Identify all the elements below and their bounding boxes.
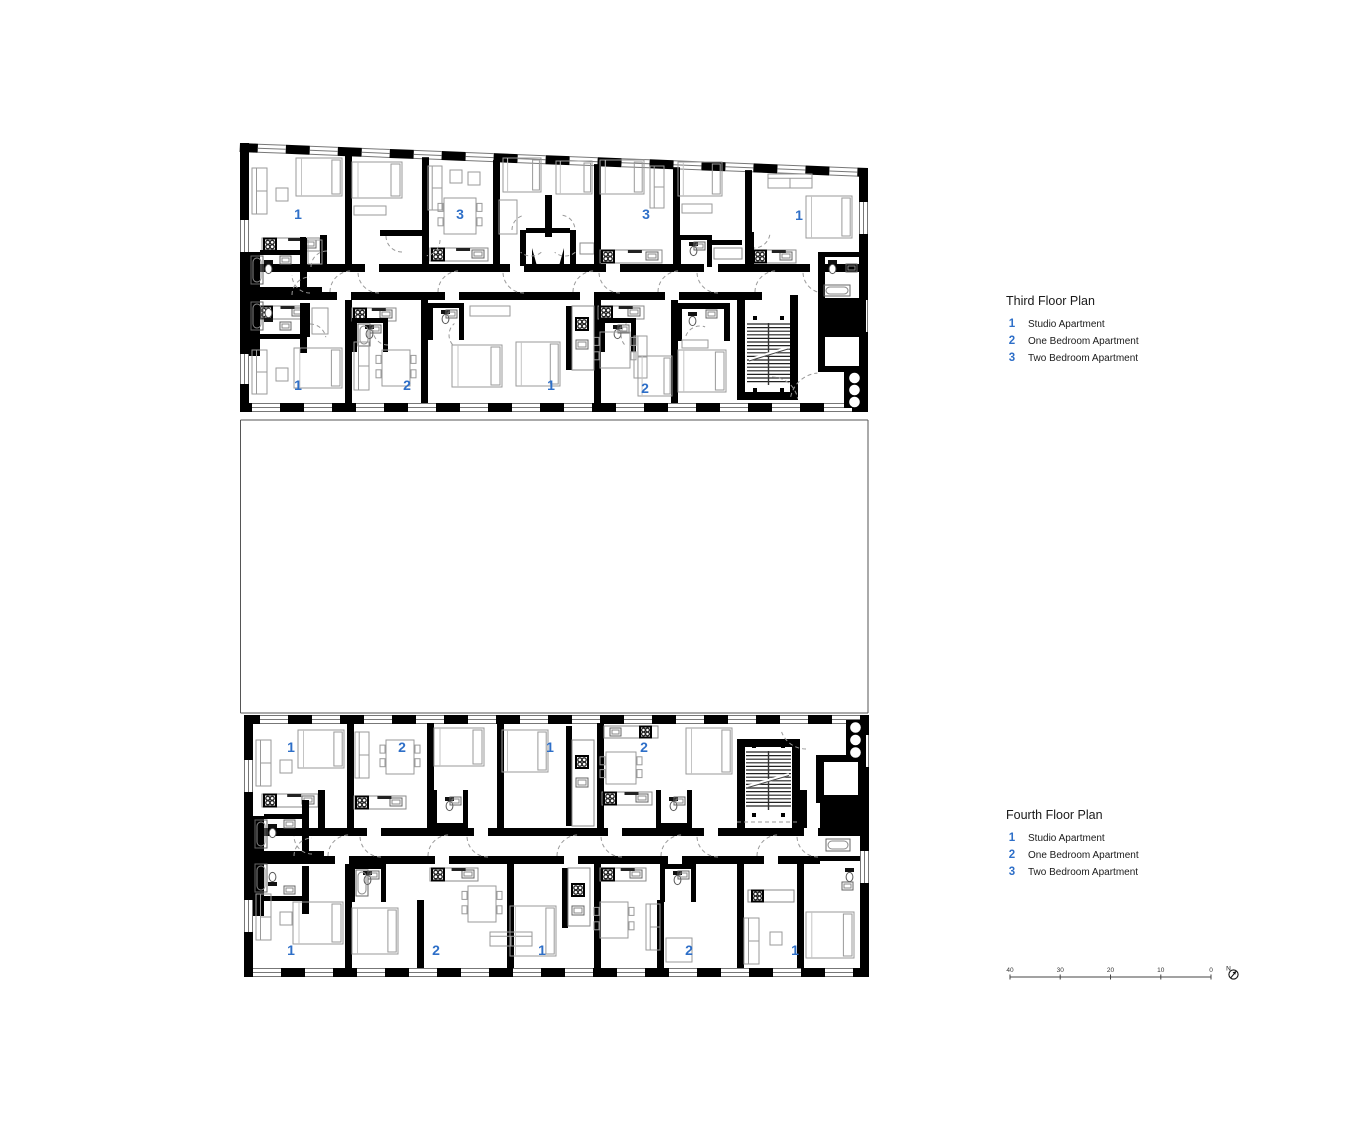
svg-text:Studio Apartment: Studio Apartment [1028, 833, 1105, 844]
svg-text:20: 20 [1107, 967, 1115, 974]
svg-text:2: 2 [685, 942, 693, 958]
svg-text:1: 1 [1009, 832, 1016, 844]
svg-text:Fourth Floor Plan: Fourth Floor Plan [1006, 808, 1103, 822]
svg-text:1: 1 [287, 942, 295, 958]
svg-text:One Bedroom Apartment: One Bedroom Apartment [1028, 336, 1139, 347]
svg-text:One Bedroom Apartment: One Bedroom Apartment [1028, 850, 1139, 861]
svg-text:10: 10 [1157, 967, 1165, 974]
svg-text:1: 1 [294, 206, 302, 222]
svg-text:40: 40 [1006, 967, 1014, 974]
svg-text:1: 1 [1009, 318, 1016, 330]
svg-text:1: 1 [294, 377, 302, 393]
svg-text:30: 30 [1057, 967, 1065, 974]
svg-text:1: 1 [791, 942, 799, 958]
svg-text:2: 2 [1009, 335, 1015, 347]
svg-text:3: 3 [1009, 866, 1015, 878]
svg-text:Third Floor Plan: Third Floor Plan [1006, 294, 1095, 308]
svg-text:3: 3 [642, 206, 650, 222]
svg-text:2: 2 [398, 739, 406, 755]
svg-text:1: 1 [795, 207, 803, 223]
svg-text:1: 1 [547, 377, 555, 393]
svg-text:1: 1 [538, 942, 546, 958]
svg-text:Studio Apartment: Studio Apartment [1028, 319, 1105, 330]
svg-text:2: 2 [403, 377, 411, 393]
svg-text:3: 3 [1009, 352, 1015, 364]
svg-text:1: 1 [287, 739, 295, 755]
svg-text:0: 0 [1209, 967, 1213, 974]
svg-text:2: 2 [641, 380, 649, 396]
svg-text:2: 2 [432, 942, 440, 958]
svg-text:1: 1 [546, 739, 554, 755]
svg-text:Two Bedroom Apartment: Two Bedroom Apartment [1028, 353, 1138, 364]
svg-text:Two Bedroom Apartment: Two Bedroom Apartment [1028, 867, 1138, 878]
svg-text:3: 3 [456, 206, 464, 222]
svg-text:2: 2 [1009, 849, 1015, 861]
svg-text:2: 2 [640, 739, 648, 755]
